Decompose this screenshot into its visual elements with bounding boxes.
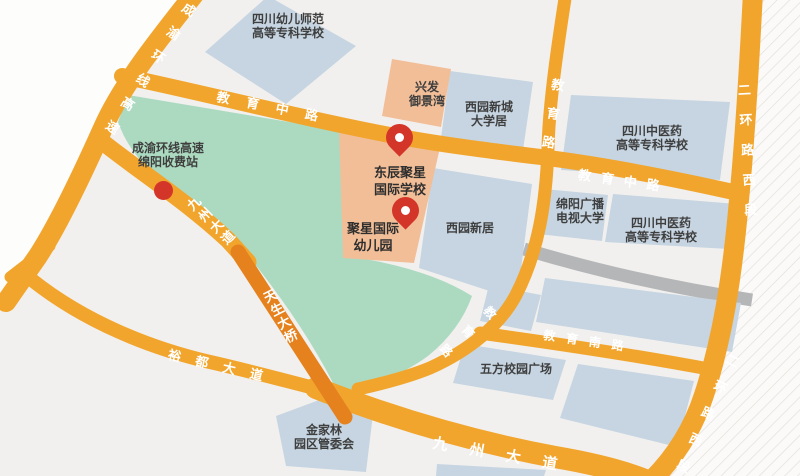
place-label-tcm-college-south: 四川中医药 高等专科学校 xyxy=(625,216,697,244)
marker-label-line: 国际学校 xyxy=(374,181,426,198)
toll-station-dot-icon[interactable] xyxy=(154,181,173,200)
marker-label-school: 东辰聚星 国际学校 xyxy=(374,164,426,198)
marker-label-line: 聚星国际 xyxy=(347,220,399,237)
building-slab-south xyxy=(560,364,694,447)
place-label-line: 兴发 xyxy=(409,80,445,94)
place-label-line: 高等专科学校 xyxy=(616,138,688,152)
place-label-line: 金家林 xyxy=(294,423,354,437)
place-label-line: 绵阳广播 xyxy=(556,197,604,211)
marker-label-line: 幼儿园 xyxy=(347,237,399,254)
map-canvas[interactable]: 成渝环线高速 教育中路 教育中路 教育路 教育路 教育南路 二环路西段 二环路西… xyxy=(0,0,800,476)
place-label-line: 四川幼儿师范 xyxy=(252,12,324,26)
place-label-preschool-college: 四川幼儿师范 高等专科学校 xyxy=(252,12,324,40)
place-label-line: 四川中医药 xyxy=(616,124,688,138)
place-label-line: 西园新城 xyxy=(465,100,513,114)
place-label-xiyuan-xinju: 西园新居 xyxy=(446,221,494,235)
place-label-toll-station: 成渝环线高速 绵阳收费站 xyxy=(132,141,204,169)
place-label-tcm-college-north: 四川中医药 高等专科学校 xyxy=(616,124,688,152)
place-label-line: 四川中医药 xyxy=(625,216,697,230)
place-label-xiyuan-xincheng: 西园新城 大学居 xyxy=(465,100,513,128)
marker-label-kindergarten: 聚星国际 幼儿园 xyxy=(347,220,399,254)
place-label-xingfa-yujingwan: 兴发 御景湾 xyxy=(409,80,445,108)
place-label-line: 御景湾 xyxy=(409,94,445,108)
place-label-line: 高等专科学校 xyxy=(252,26,324,40)
place-label-radio-tv-university: 绵阳广播 电视大学 xyxy=(556,197,604,225)
place-label-line: 大学居 xyxy=(465,114,513,128)
place-label-wufang-plaza: 五方校园广场 xyxy=(480,362,552,376)
place-label-line: 电视大学 xyxy=(556,211,604,225)
place-label-line: 绵阳收费站 xyxy=(132,155,204,169)
marker-label-line: 东辰聚星 xyxy=(374,164,426,181)
place-label-jinjialin-committee: 金家林 园区管委会 xyxy=(294,423,354,451)
place-label-line: 成渝环线高速 xyxy=(132,141,204,155)
place-label-line: 高等专科学校 xyxy=(625,230,697,244)
place-label-line: 园区管委会 xyxy=(294,437,354,451)
